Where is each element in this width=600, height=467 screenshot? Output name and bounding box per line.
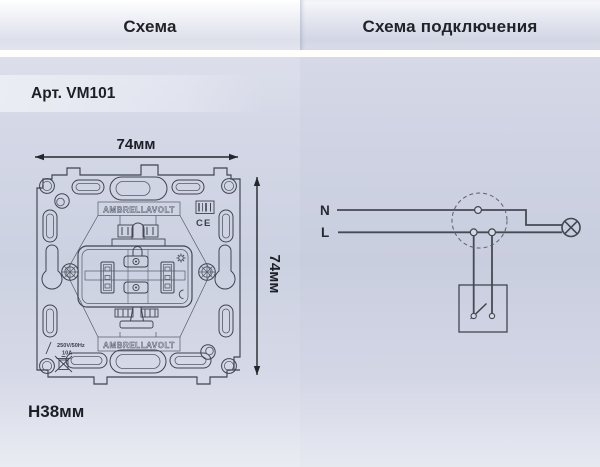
mechanism-drawing: 74мм 74мм Н38мм: [0, 57, 300, 467]
rating-voltage: 250V/50Hz: [57, 343, 85, 349]
height-dimension-label: 74мм: [266, 255, 283, 294]
brand-logo-circle: [55, 194, 215, 359]
width-dimension-label: 74мм: [117, 136, 156, 153]
width-dimension-arrow: [35, 154, 238, 160]
tab-wiring-scheme[interactable]: Схема подключения: [300, 0, 600, 50]
switch-icon: [459, 285, 507, 332]
scheme-panel: Арт. VM101 74мм 74мм Н38мм: [0, 57, 300, 467]
weee-bin-icon: [55, 356, 72, 372]
construction-lines: [66, 216, 211, 338]
tab-scheme[interactable]: Схема: [0, 0, 300, 50]
switch-housing: [78, 246, 192, 307]
header-separator: [0, 50, 600, 57]
rating-current: 10A: [62, 351, 72, 357]
depth-dimension-label: Н38мм: [28, 402, 84, 421]
sun-icon: [177, 254, 186, 263]
slash-mark: [46, 342, 51, 354]
junction-dashed-circle: [452, 193, 507, 248]
neutral-wire-label: N: [320, 203, 330, 218]
tab-wiring-scheme-label: Схема подключения: [362, 13, 537, 37]
brand-name-top: AMBRELLAVOLT: [103, 206, 175, 215]
ce-mark: CE: [196, 218, 212, 229]
neutral-wire: [337, 210, 563, 225]
terminal-dot: [470, 207, 495, 236]
moon-icon: [179, 290, 183, 299]
height-dimension-arrow: [254, 177, 260, 375]
upper-mechanism: [112, 216, 165, 247]
barcode-icon: [196, 201, 214, 214]
tab-scheme-label: Схема: [123, 13, 176, 37]
wiring-panel: N L: [300, 57, 600, 467]
product-spec-sheet: Схема Схема подключения Арт. VM101 74мм …: [0, 0, 600, 467]
wiring-diagram: N L: [300, 57, 600, 467]
line-wire-label: L: [321, 225, 329, 240]
lower-mechanism: [115, 307, 158, 337]
brand-name-bottom: AMBRELLAVOLT: [103, 341, 175, 350]
lamp-icon: [562, 219, 580, 237]
